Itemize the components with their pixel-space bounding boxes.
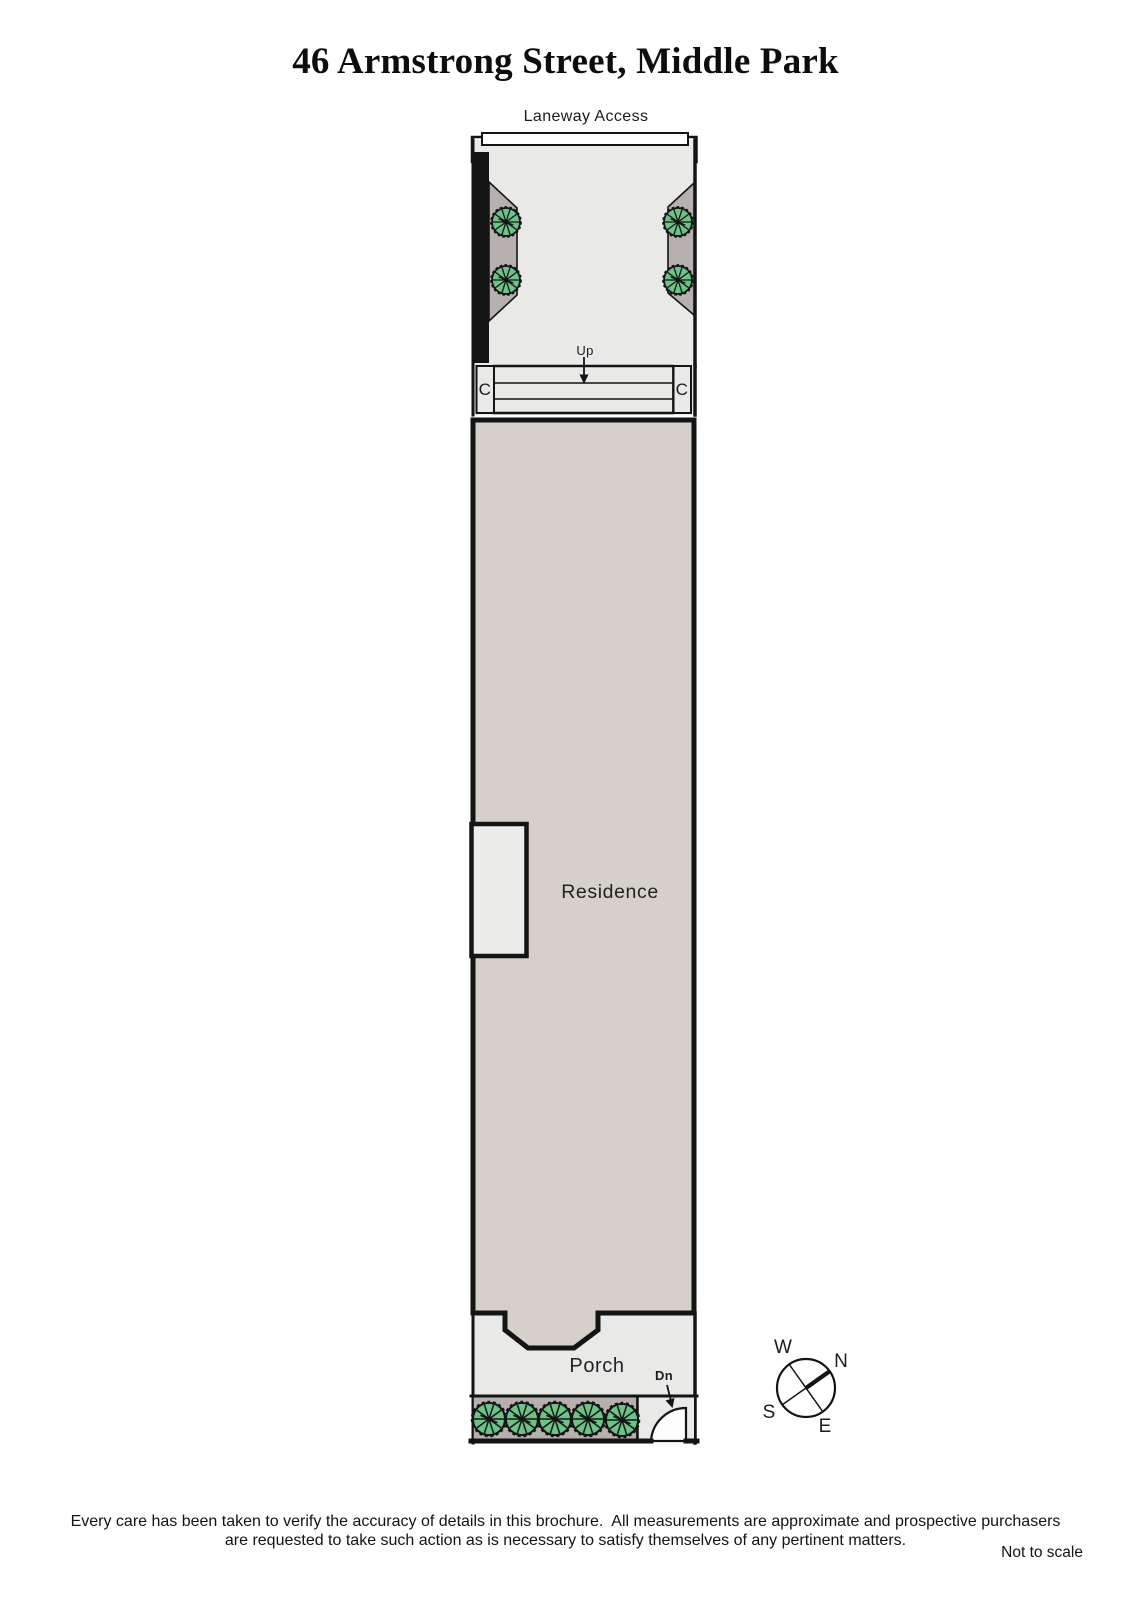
laneway-access-label: Laneway Access [524, 108, 649, 126]
stairs [473, 357, 695, 415]
cupboard-right-label: C [676, 381, 689, 400]
porch-label: Porch [569, 1355, 624, 1377]
rear-courtyard [472, 133, 697, 366]
cupboard-left-label: C [479, 381, 492, 400]
down-label: Dn [655, 1369, 673, 1383]
compass-north-label: N [834, 1352, 848, 1373]
site-plan-drawing [0, 0, 1131, 1600]
disclaimer-line-1: Every care has been taken to verify the … [0, 1513, 1131, 1531]
compass-south-label: S [763, 1403, 776, 1424]
up-label: Up [576, 344, 593, 358]
bay-window [472, 824, 527, 956]
side-wall-strip [474, 152, 489, 363]
page-title: 46 Armstrong Street, Middle Park [0, 40, 1131, 83]
compass-west-label: W [774, 1338, 792, 1359]
floorplan-page: 46 Armstrong Street, Middle Park Laneway… [0, 0, 1131, 1600]
laneway-opening [482, 133, 688, 145]
scale-note: Not to scale [1001, 1544, 1083, 1562]
residence-label: Residence [561, 882, 659, 903]
compass-east-label: E [819, 1417, 832, 1438]
disclaimer-line-2: are requested to take such action as is … [0, 1532, 1131, 1550]
compass-icon [777, 1359, 835, 1417]
